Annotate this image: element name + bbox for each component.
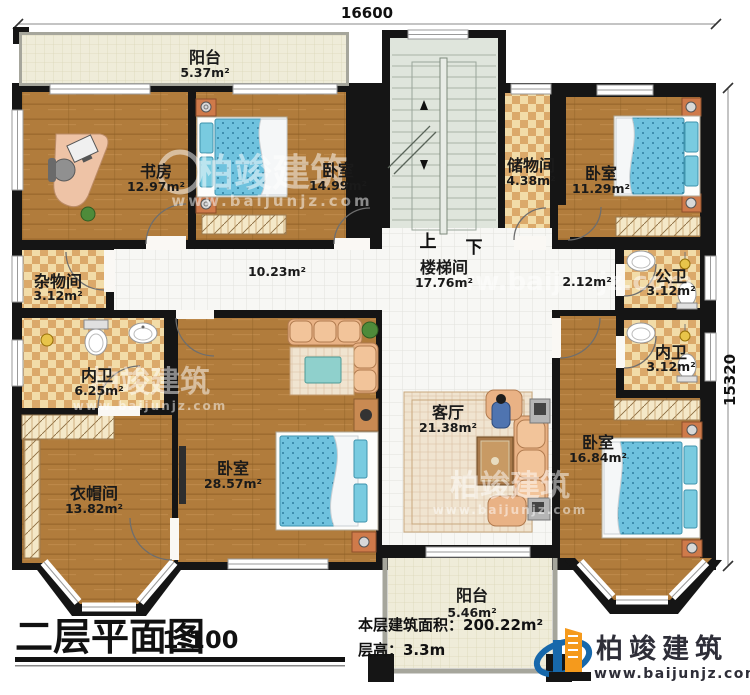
drain-icon [41,334,53,346]
plant [362,322,378,338]
room-balcony-bottom-label: 阳台 [456,586,488,605]
floor-height-label: 层高：3.3m [358,641,445,659]
scale-label: 1:100 [162,626,238,654]
coffee-table [305,357,341,383]
room-bedroom-bottomright-area: 16.84m² [569,450,627,465]
window [705,333,716,381]
dimension-right: 15320 [721,83,739,571]
room-ensuite-right-area: 3.12m² [646,359,695,374]
watermark: 柏竣建筑 www.baijunjz.com [433,469,588,517]
sink-icon [129,323,157,343]
room-storage-area: 4.38m² [506,173,555,188]
window [50,84,150,94]
dim-right-label: 15320 [721,354,739,406]
room-study-area: 12.97m² [127,179,185,194]
watermark-site: www.baijunjz.com [433,503,588,517]
room-bedroom-master-area: 28.57m² [204,476,262,491]
dim-top-label: 16600 [341,4,393,22]
toilet-icon [84,320,108,355]
room-utility-area: 3.12m² [33,288,82,303]
corridor-area: 10.23m² [248,264,306,279]
watermark-name: 柏竣建筑 [450,469,570,504]
person [492,402,510,428]
room-bedroom-topright-area: 11.29m² [572,181,630,196]
window [511,84,551,94]
chair [53,159,75,181]
corridor-right-area: 2.12m² [562,274,611,289]
floor-plan-page: 16600 15320 [0,0,750,695]
room-cloakroom-area: 13.82m² [65,501,123,516]
window [705,256,716,300]
window [597,85,653,95]
watermark-site: www.baijunjz.com [171,192,372,210]
plant [81,207,95,221]
room-ensuite-left-area: 6.25m² [74,383,123,398]
window [12,340,23,386]
wardrobe [614,400,700,420]
window [12,110,23,190]
brand-logo: 柏竣建筑 www.baijunjz.com [533,628,750,682]
stair-down-label: 下 [466,238,483,258]
dresser [202,215,286,234]
sink-icon [627,323,655,343]
window [426,547,530,557]
room-bedroom-top-area: 14.99m² [309,178,367,193]
watermark-site: www.baijunjz.com [73,399,228,413]
room-stairwell-area: 17.76m² [415,275,473,290]
window [408,30,468,39]
brand-name: 柏竣建筑 [596,633,728,665]
stair-rail [440,58,447,234]
window [12,256,23,302]
dimension-top: 16600 [13,4,721,29]
room-public-bath-area: 3.12m² [646,283,695,298]
room-bedroom-topright-entry [558,205,570,240]
brand-website: www.baijunjz.com [594,666,750,682]
window [233,84,337,94]
room-balcony-top-area: 5.37m² [180,65,229,80]
floor-area-label: 本层建筑面积：200.22m² [358,616,543,634]
room-living-area: 21.38m² [419,420,477,435]
stair-up-label: 上 [420,232,437,252]
floor-plan-svg: 16600 15320 [0,0,750,695]
tv [179,446,186,504]
wardrobe [616,217,700,236]
window [228,559,328,569]
